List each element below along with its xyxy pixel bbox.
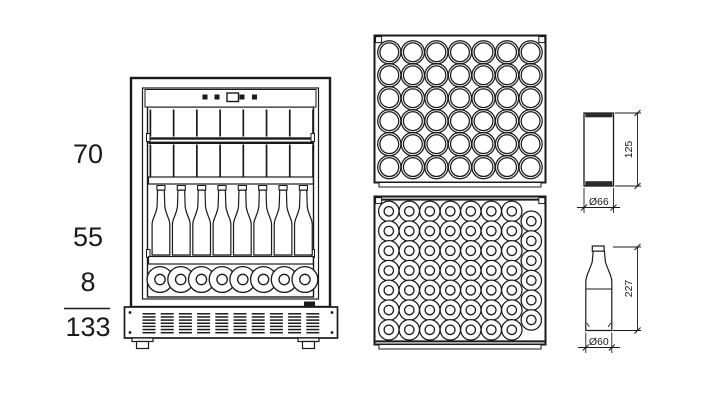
display-icon xyxy=(227,93,239,102)
bottle-outline xyxy=(586,251,612,330)
control-button-icon xyxy=(240,95,245,100)
screw-icon xyxy=(129,311,132,314)
can-side-view: 125 Ø66 xyxy=(577,110,641,213)
cans-capacity: 70 xyxy=(73,139,103,169)
control-button-icon xyxy=(252,95,257,100)
bottle-height-dimension: 227 xyxy=(613,244,641,334)
can-height-label: 125 xyxy=(623,141,635,159)
shelf-bar-bottom xyxy=(149,142,314,144)
can-body xyxy=(584,113,614,186)
bottle-height-label: 227 xyxy=(623,280,635,298)
wall-clip xyxy=(311,134,315,142)
hinge-block xyxy=(304,302,315,308)
left-foot xyxy=(132,338,153,349)
bottle-side-view: 227 Ø60 xyxy=(578,244,641,353)
bottle-diameter-dimension: Ø60 xyxy=(578,333,620,354)
can-diameter-label: Ø66 xyxy=(589,196,609,208)
control-button-icon xyxy=(203,95,208,100)
right-foot xyxy=(298,338,319,349)
can-top-rim xyxy=(585,113,612,118)
corner-notch xyxy=(539,198,545,204)
standing-bottles-capacity: 55 xyxy=(73,222,103,252)
capacity-summary: 70 55 8 133 xyxy=(64,139,111,342)
corner-notch xyxy=(539,37,545,43)
can-diameter-dimension: Ø66 xyxy=(577,188,620,213)
can-bottom-rim xyxy=(585,181,612,186)
screw-icon xyxy=(331,331,334,334)
control-panel xyxy=(145,90,316,108)
base-panel xyxy=(125,307,338,338)
mid-shelf xyxy=(149,177,314,184)
control-button-icon xyxy=(215,95,220,100)
total-capacity: 133 xyxy=(65,312,110,342)
can-height-dimension: 125 xyxy=(615,110,641,189)
bottle-tray-lip xyxy=(379,345,541,350)
corner-notch xyxy=(376,37,382,43)
diagram-canvas: 70 55 8 133 xyxy=(0,0,711,403)
shelf-bar-top xyxy=(149,137,314,139)
screw-icon xyxy=(129,331,132,334)
fridge-front-view xyxy=(125,78,338,349)
wall-clip xyxy=(147,134,151,142)
bottle-cap xyxy=(592,246,604,251)
bottle-shelf xyxy=(149,257,314,265)
lying-bottles-capacity: 8 xyxy=(80,267,95,297)
screw-icon xyxy=(331,311,334,314)
bottle-diameter-label: Ø60 xyxy=(589,336,609,348)
bottle-tray-top-view xyxy=(375,197,546,350)
corner-notch xyxy=(376,198,382,204)
can-tray-lip xyxy=(379,183,541,188)
can-tray-top-view xyxy=(375,36,546,188)
